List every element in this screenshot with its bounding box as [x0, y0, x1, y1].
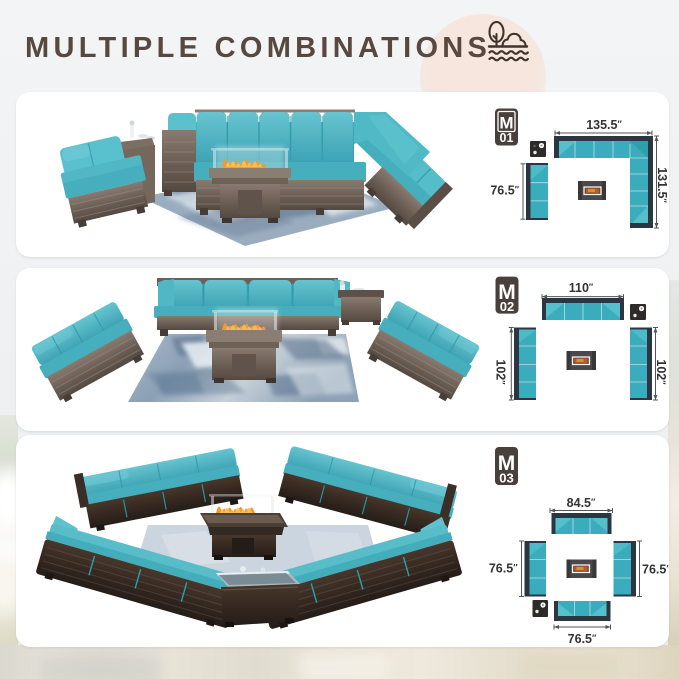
svg-text:76.5″: 76.5″	[489, 562, 518, 576]
svg-text:M: M	[499, 114, 513, 133]
svg-text:110″: 110″	[569, 281, 594, 295]
svg-text:76.5″: 76.5″	[490, 184, 519, 198]
svg-text:131.5″: 131.5″	[655, 167, 669, 203]
svg-text:76.5″: 76.5″	[568, 632, 597, 646]
svg-text:135.5″: 135.5″	[586, 118, 622, 132]
svg-text:01: 01	[500, 131, 514, 145]
svg-text:102″: 102″	[494, 359, 508, 385]
svg-text:76.5″: 76.5″	[642, 563, 669, 577]
svg-text:84.5″: 84.5″	[567, 496, 596, 510]
svg-text:03: 03	[499, 471, 513, 486]
svg-text:02: 02	[500, 299, 514, 314]
svg-text:102″: 102″	[654, 359, 668, 385]
